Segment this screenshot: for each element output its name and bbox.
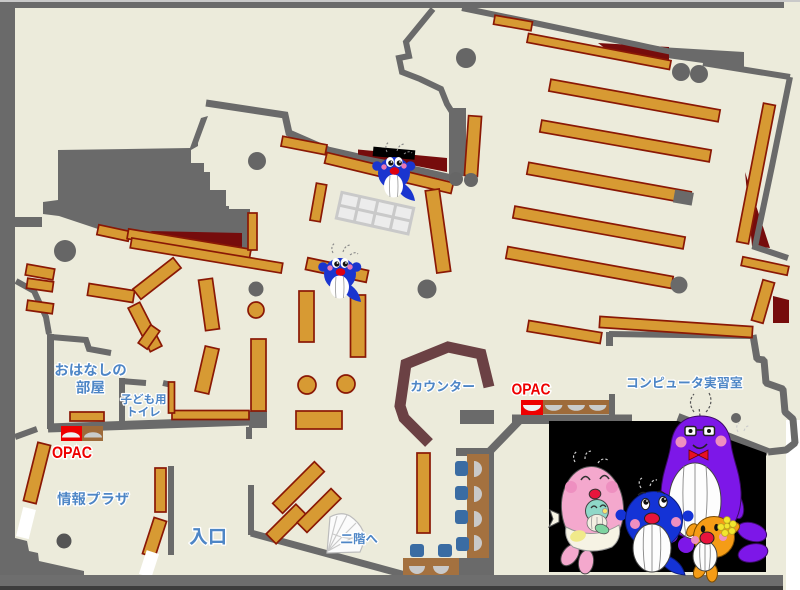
- svg-text:OPAC: OPAC: [52, 444, 92, 462]
- svg-text:OPAC: OPAC: [512, 382, 551, 399]
